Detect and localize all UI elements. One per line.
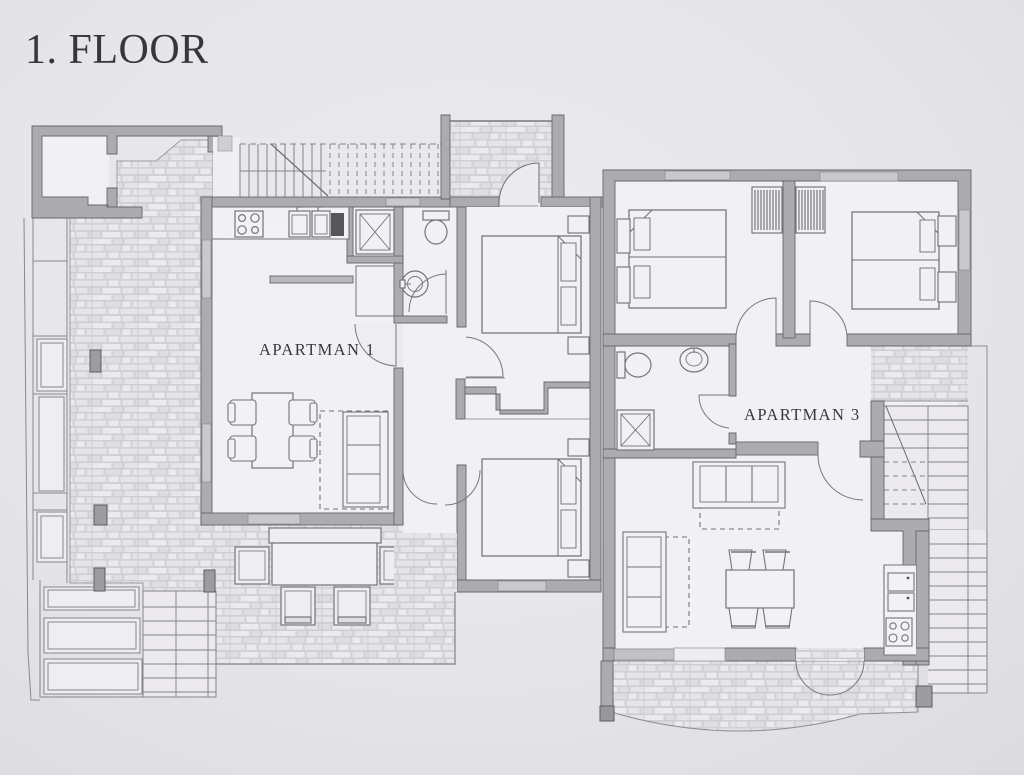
svg-text:APARTMAN 3: APARTMAN 3 bbox=[744, 405, 860, 424]
svg-text:1. FLOOR: 1. FLOOR bbox=[25, 27, 209, 73]
svg-text:APARTMAN 1: APARTMAN 1 bbox=[259, 340, 375, 359]
